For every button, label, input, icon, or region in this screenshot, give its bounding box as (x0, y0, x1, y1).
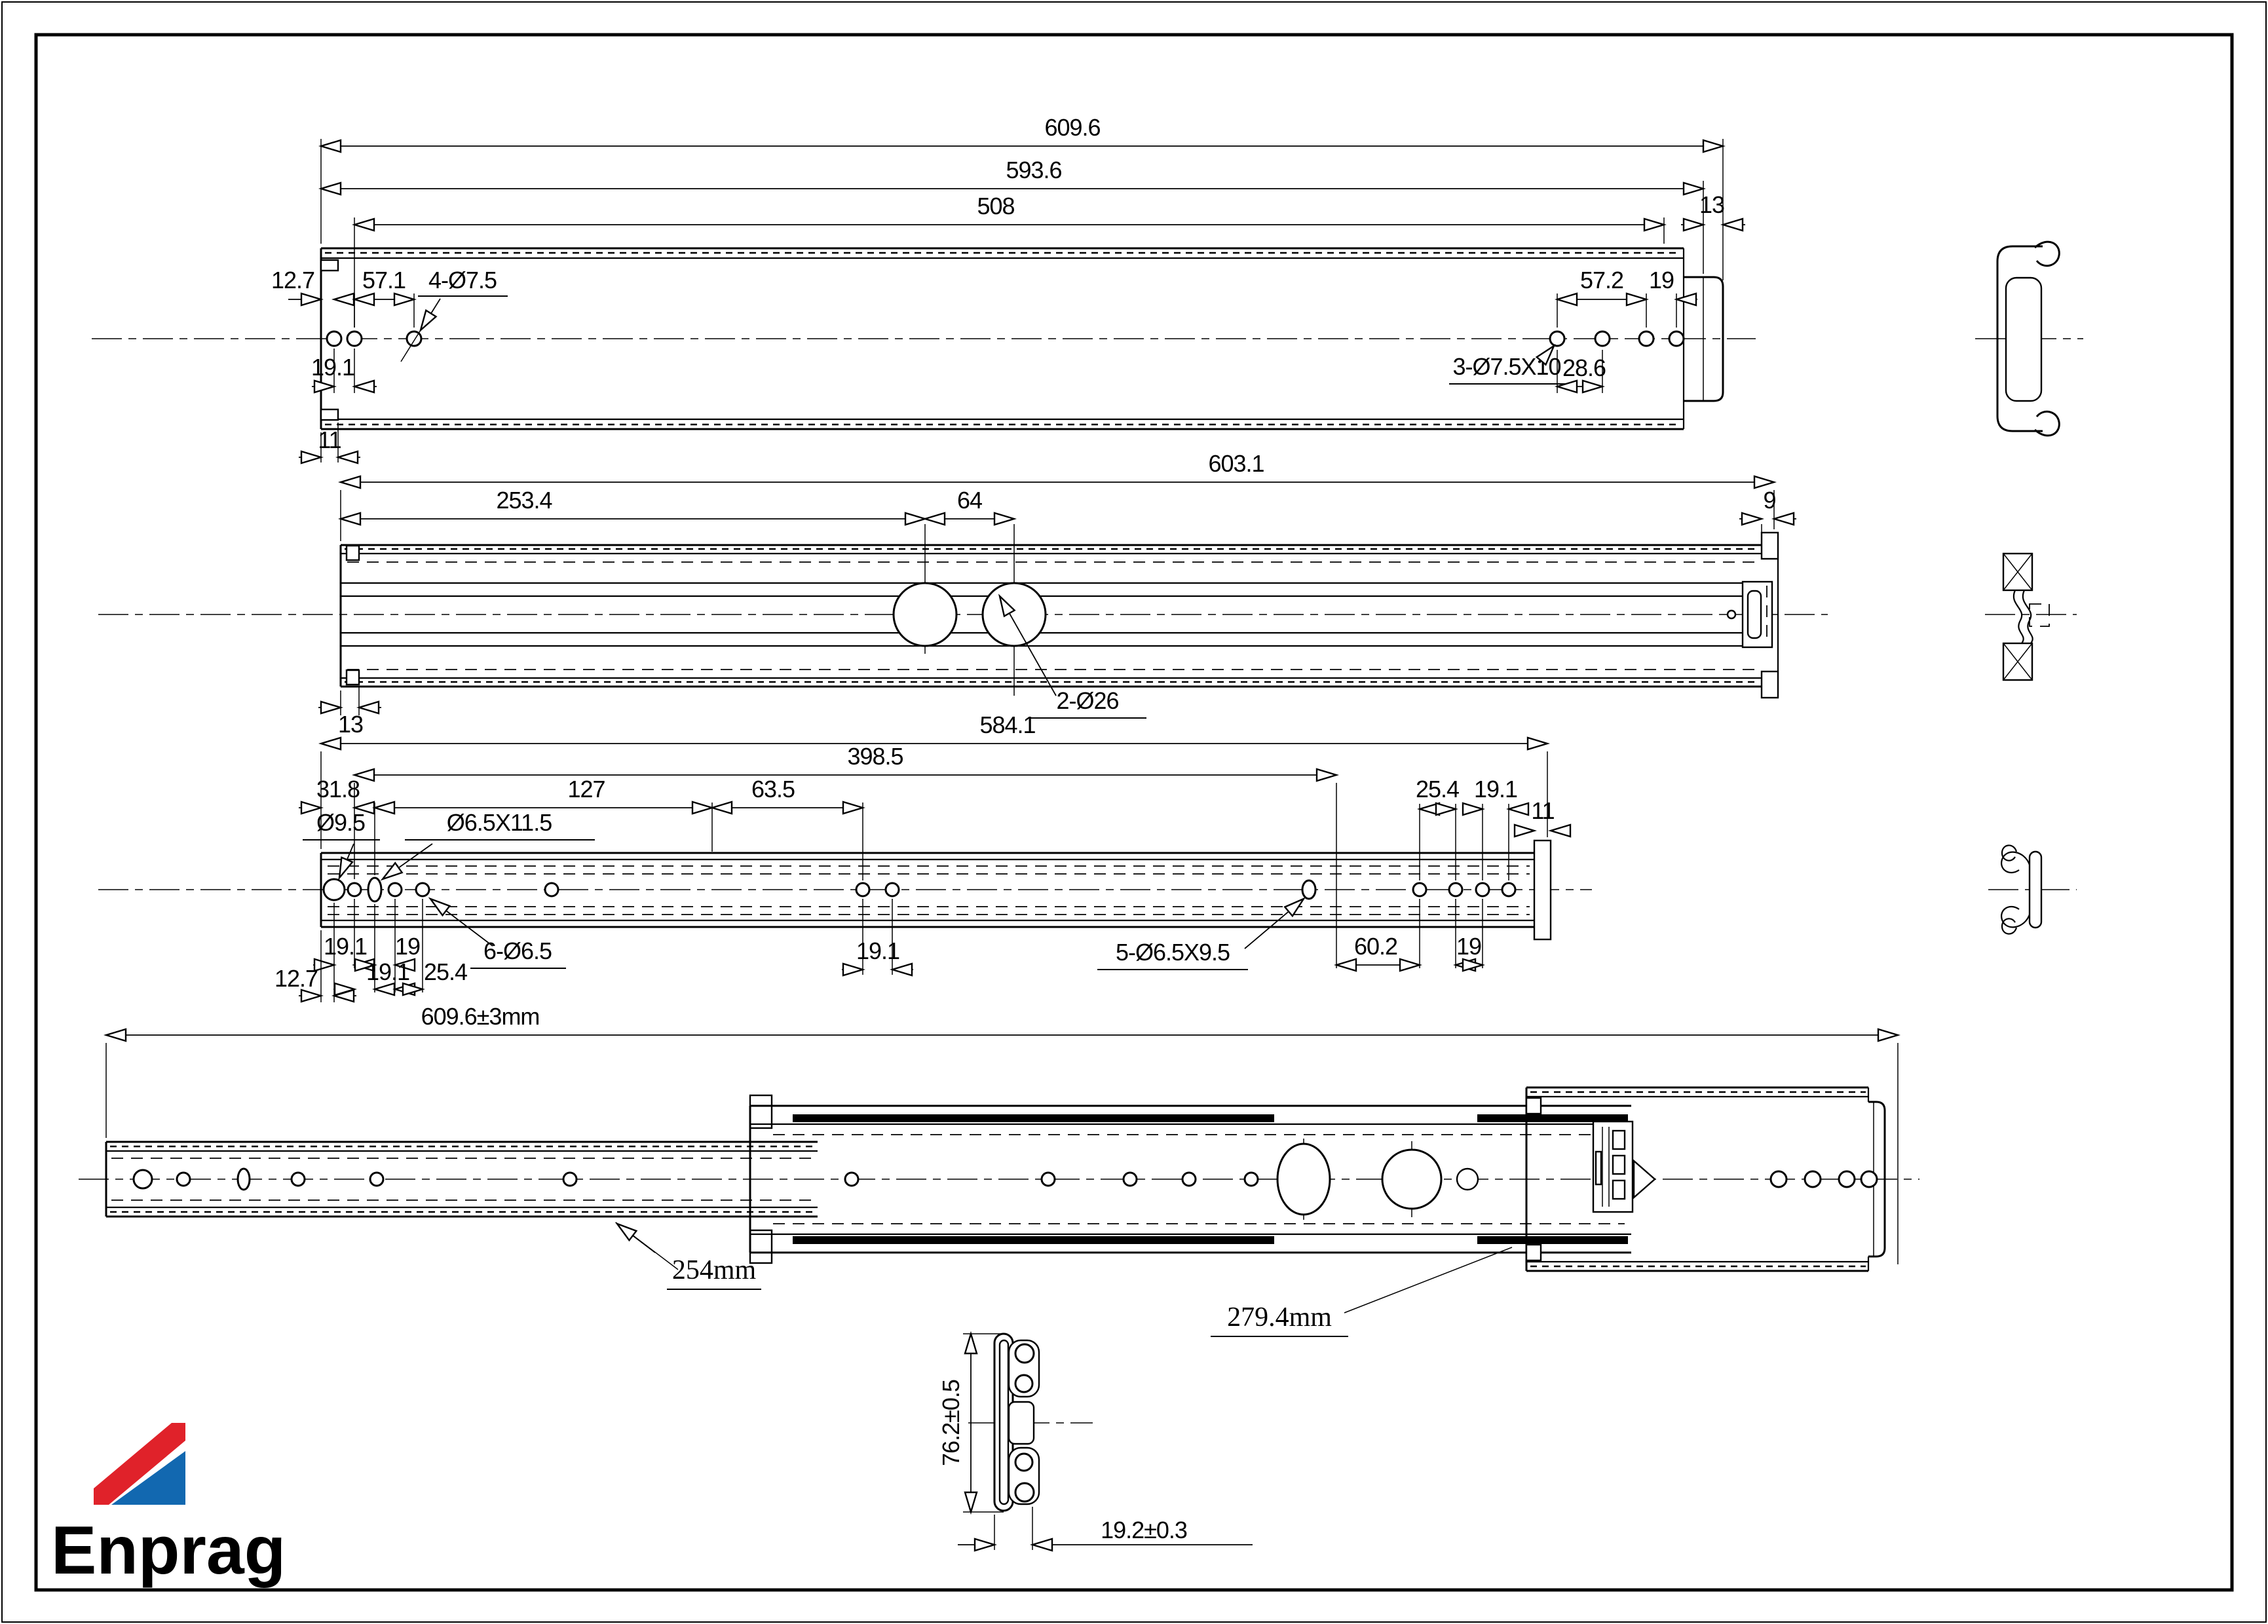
hole (370, 1173, 383, 1186)
latch-detail (1593, 1122, 1655, 1212)
view-middle-rail: 603.1 253.4 64 9 2-Ø26 13 (98, 450, 1828, 738)
dim-total: 609.6±3mm (421, 1003, 540, 1030)
hole (1457, 1169, 1478, 1190)
hole (1669, 331, 1684, 346)
dim-tab: 13 (338, 711, 363, 738)
stop-tab (1526, 1098, 1541, 1114)
dim-pitch: 64 (957, 487, 982, 514)
label-slot: Ø6.5X11.5 (447, 809, 552, 836)
ball (1015, 1344, 1034, 1363)
profile-middle-rail (1985, 554, 2077, 680)
hole (134, 1170, 152, 1188)
dim-span: 253.4 (496, 487, 552, 514)
dim-step: 13 (1699, 191, 1724, 218)
dim-edge-top: 31.8 (316, 776, 360, 803)
hole (1449, 883, 1462, 896)
label-holes: 6-Ø6.5 (483, 937, 552, 964)
hole (1182, 1173, 1196, 1186)
hole (348, 883, 361, 896)
dim-step: 9 (1763, 487, 1775, 514)
hole (886, 883, 899, 896)
dim-edge: 12.7 (271, 267, 314, 293)
hole (327, 331, 341, 346)
dim-pitch1: 127 (567, 776, 605, 803)
hole-big (894, 583, 956, 646)
slot (238, 1169, 250, 1190)
ball (1015, 1454, 1032, 1471)
hole (177, 1173, 190, 1186)
hole (1413, 883, 1426, 896)
dim-pitch: 57.1 (362, 267, 406, 293)
dim-slot-gap: 28.6 (1562, 354, 1606, 381)
latch-pin (1728, 611, 1735, 618)
rear-tab (1762, 671, 1778, 698)
profile-outer-rail (1975, 242, 2083, 436)
end-stop-tab (321, 409, 338, 420)
dim-pitch2: 63.5 (751, 776, 795, 803)
dim-closed-length: 254mm (672, 1255, 757, 1285)
hole (416, 883, 429, 896)
hole (1595, 331, 1610, 346)
dim-height: 76.2±0.5 (937, 1380, 964, 1466)
hole (545, 883, 558, 896)
stop-tab (1526, 1245, 1541, 1260)
dim-span-right: 60.2 (1354, 933, 1397, 960)
ball-strip (793, 1114, 1274, 1122)
dim-tab: 11 (318, 426, 341, 453)
hole (1124, 1173, 1137, 1186)
hole (856, 883, 869, 896)
dim-gap6: 19.1 (1474, 776, 1517, 803)
view-inner-rail: 584.1 398.5 31.8 127 63.5 25.4 19.1 11 Ø… (98, 711, 1592, 1002)
dim-pitch-right: 57.2 (1580, 267, 1623, 293)
ball (1015, 1375, 1032, 1392)
hole (1245, 1173, 1258, 1186)
hole (407, 331, 421, 346)
dim-gap5: 19 (1456, 933, 1481, 960)
hole-big (1382, 1150, 1441, 1209)
hole-big (983, 583, 1046, 646)
dim-gap2: 19.1 (366, 958, 409, 985)
logo-enprag: Enprag (51, 1423, 286, 1589)
dim-width: 19.2±0.3 (1101, 1517, 1187, 1543)
mid-tab (750, 1095, 772, 1128)
dim-travel-length: 279.4mm (1227, 1302, 1332, 1332)
dim-body: 593.6 (1006, 157, 1061, 183)
hole (1861, 1171, 1877, 1187)
logo-text: Enprag (51, 1513, 286, 1589)
dim-total: 603.1 (1208, 450, 1264, 477)
dim-gap3: 19 (395, 933, 420, 960)
hole (1771, 1171, 1786, 1187)
hole (1476, 883, 1489, 896)
hole (347, 331, 362, 346)
dim-gap-mid: 19.1 (856, 937, 899, 964)
dim-gap1: 19.1 (324, 933, 367, 960)
end-tab (347, 670, 359, 685)
slot (368, 878, 381, 901)
inner-web (1009, 1402, 1034, 1444)
drawing-sheet: 609.6 593.6 508 13 12.7 57.1 19.1 4-Ø7.5… (0, 0, 2268, 1624)
hole (845, 1173, 858, 1186)
slot (1302, 880, 1315, 899)
hole-big (324, 879, 345, 900)
ball-strip (1477, 1236, 1628, 1244)
dim-pitch-right: 25.4 (1416, 776, 1459, 803)
view-cross-section: 76.2±0.5 19.2±0.3 (937, 1334, 1253, 1550)
dim-gap4: 25.4 (424, 958, 467, 985)
dim-edge: 12.7 (274, 965, 318, 992)
hole (292, 1173, 305, 1186)
label-hole: Ø9.5 (316, 809, 365, 836)
view-outer-rail: 609.6 593.6 508 13 12.7 57.1 19.1 4-Ø7.5… (92, 114, 1756, 463)
hole-big (1277, 1144, 1330, 1215)
dim-span: 508 (977, 193, 1014, 219)
ball (1015, 1483, 1034, 1501)
dim-total: 609.6 (1044, 114, 1100, 141)
hole (1805, 1171, 1821, 1187)
end-stop-tab (321, 260, 338, 271)
dim-gap: 19.1 (311, 354, 354, 381)
hole (1639, 331, 1654, 346)
label-holes: 4-Ø7.5 (428, 267, 497, 293)
profile-inner-rail (1988, 845, 2077, 934)
hole (1502, 883, 1515, 896)
hole (1839, 1171, 1855, 1187)
ball-strip (793, 1236, 1274, 1244)
engineering-drawing: 609.6 593.6 508 13 12.7 57.1 19.1 4-Ø7.5… (0, 0, 2268, 1624)
view-assembly-extended: 609.6±3mm 254mm 279.4mm (79, 1003, 1919, 1336)
hole (563, 1173, 576, 1186)
hole (1550, 331, 1564, 346)
end-tab (347, 546, 359, 560)
rear-tab (1762, 533, 1778, 559)
mount-tab (2030, 604, 2049, 626)
dim-tab: 11 (1531, 797, 1554, 824)
hole (1042, 1173, 1055, 1186)
label-slots: 5-Ø6.5X9.5 (1116, 939, 1230, 966)
hole (388, 883, 402, 896)
dim-total: 584.1 (979, 711, 1035, 738)
label-holes: 2-Ø26 (1056, 687, 1118, 714)
dim-gap-right: 19 (1649, 267, 1674, 293)
rear-tab (1534, 840, 1551, 939)
dim-span: 398.5 (847, 743, 903, 770)
